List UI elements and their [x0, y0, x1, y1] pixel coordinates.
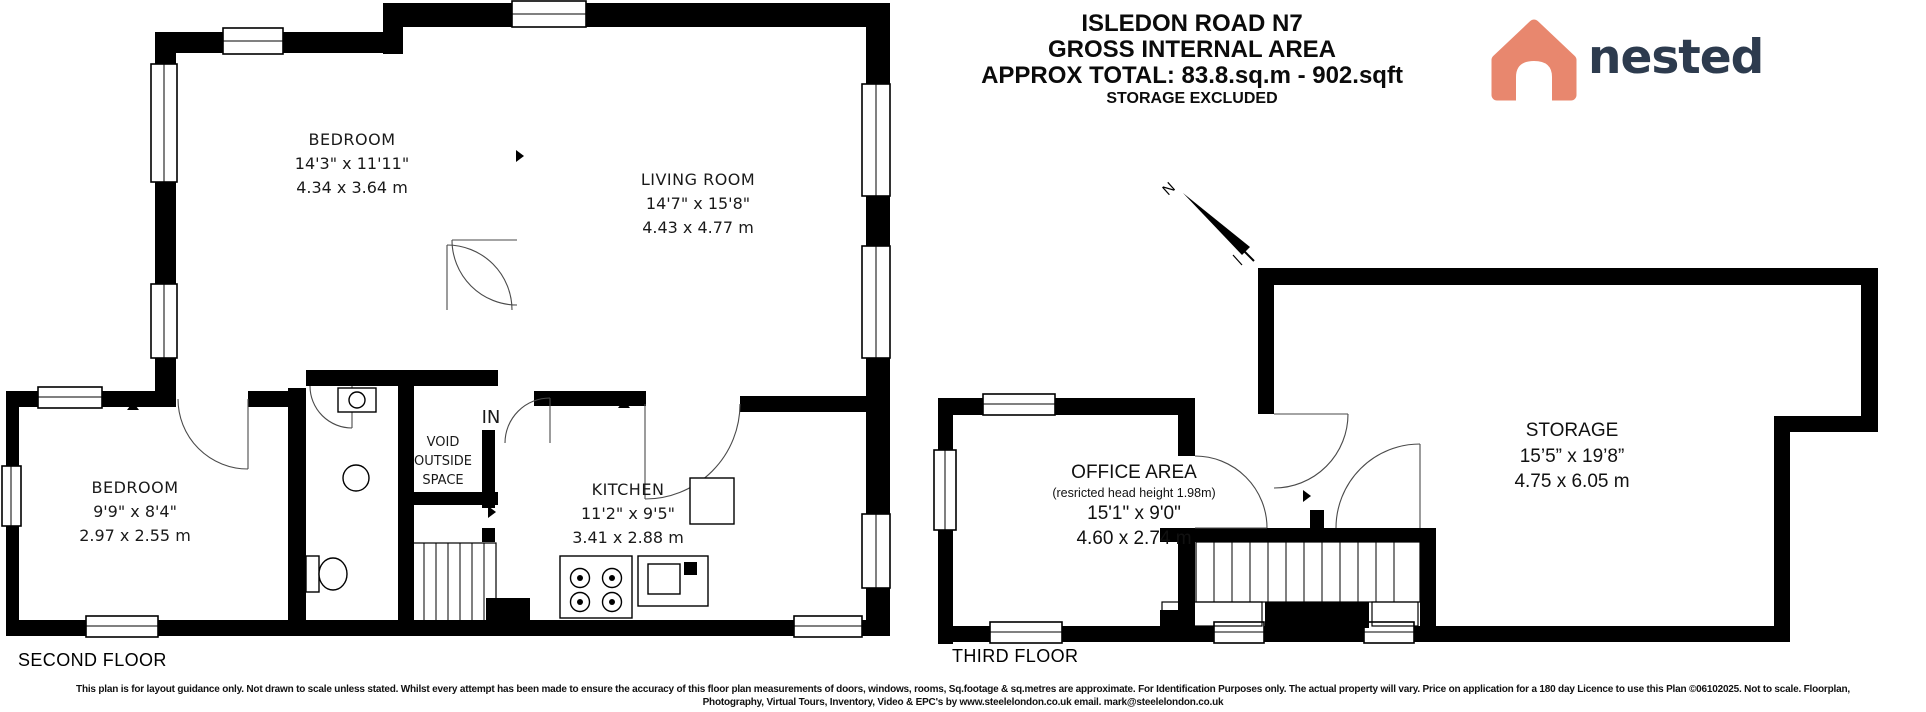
nested-logo-house-icon: [1497, 25, 1571, 101]
room-dims-imperial: 9'9" x 8'4": [79, 500, 191, 524]
storage-label: STORAGE 15’5” x 19’8” 4.75 x 6.05 m: [1514, 418, 1629, 495]
room-name: BEDROOM: [295, 128, 409, 152]
entry-arrows: [1303, 490, 1311, 502]
room-dims-metric: 4.43 x 4.77 m: [641, 216, 755, 240]
door-swing: [447, 245, 512, 310]
kitchen-sink-icon: [638, 556, 708, 606]
third-floor-plan: [934, 268, 1878, 644]
window: [862, 246, 890, 358]
disclaimer: This plan is for layout guidance only. N…: [0, 683, 1926, 709]
room-name: OFFICE AREA: [1052, 460, 1215, 486]
window: [512, 1, 586, 27]
approx-total-area: APPROX TOTAL: 83.8.sq.m - 902.sqft: [981, 63, 1403, 89]
kitchen-label: KITCHEN 11'2" x 9'5" 3.41 x 2.88 m: [572, 478, 684, 550]
void-outside-space-label: VOID OUTSIDE SPACE: [414, 434, 472, 491]
room-note: (resricted head height 1.98m): [1052, 486, 1215, 501]
compass-icon: N: [1159, 179, 1254, 265]
room-dims-imperial: 14'7" x 15'8": [641, 192, 755, 216]
toilet-icon: [306, 556, 347, 592]
sink-icon: [338, 388, 376, 412]
room-dims-metric: 4.60 x 2.74 m: [1052, 526, 1215, 552]
window: [1214, 622, 1264, 643]
room-dims-metric: 3.41 x 2.88 m: [572, 526, 684, 550]
gross-internal-area-label: GROSS INTERNAL AREA: [981, 37, 1403, 63]
washbasin-icon: [343, 465, 369, 491]
door-swing: [178, 399, 248, 469]
room-dims-imperial: 15’5” x 19’8”: [1514, 444, 1629, 470]
bedroom-1-label: BEDROOM 14'3" x 11'11" 4.34 x 3.64 m: [295, 128, 409, 200]
stove-icon: [560, 556, 632, 618]
second-floor-caption: SECOND FLOOR: [18, 650, 167, 671]
void-line: OUTSIDE: [414, 453, 472, 472]
floor-plan-svg: N: [0, 0, 1926, 712]
window: [862, 84, 890, 196]
room-dims-imperial: 15'1" x 9'0": [1052, 501, 1215, 527]
room-dims-metric: 4.34 x 3.64 m: [295, 176, 409, 200]
window: [151, 284, 177, 358]
entry-arrows: [127, 150, 877, 518]
compass-north-label: N: [1159, 179, 1178, 199]
room-dims-metric: 2.97 x 2.55 m: [79, 524, 191, 548]
window: [86, 616, 158, 637]
window: [151, 64, 177, 182]
disclaimer-line-2: Photography, Virtual Tours, Inventory, V…: [0, 696, 1926, 709]
staircase: [1162, 542, 1420, 628]
bedroom-2-label: BEDROOM 9'9" x 8'4" 2.97 x 2.55 m: [79, 476, 191, 548]
void-line: VOID: [414, 434, 472, 453]
window: [934, 450, 956, 530]
entrance-in-label: IN: [482, 404, 501, 431]
window: [223, 28, 283, 54]
window: [38, 387, 102, 408]
title-block: ISLEDON ROAD N7 GROSS INTERNAL AREA APPR…: [981, 11, 1403, 108]
property-address: ISLEDON ROAD N7: [981, 11, 1403, 37]
window: [2, 466, 21, 526]
door-swing: [1336, 444, 1420, 528]
room-dims-metric: 4.75 x 6.05 m: [1514, 469, 1629, 495]
room-name: BEDROOM: [79, 476, 191, 500]
office-area-label: OFFICE AREA (resricted head height 1.98m…: [1052, 460, 1215, 552]
room-name: LIVING ROOM: [641, 168, 755, 192]
floorplan-page: N ISLEDON ROAD N7 GROSS INTERNAL AREA AP…: [0, 0, 1926, 712]
window: [983, 394, 1055, 415]
door-swing: [452, 240, 517, 305]
room-dims-imperial: 14'3" x 11'11": [295, 152, 409, 176]
staircase: [412, 543, 496, 621]
room-name: STORAGE: [1514, 418, 1629, 444]
window: [990, 622, 1062, 643]
window: [862, 514, 890, 588]
storage-excluded-note: STORAGE EXCLUDED: [981, 89, 1403, 108]
void-line: SPACE: [414, 472, 472, 491]
bathroom-fixtures: [306, 388, 376, 592]
door-swing: [1274, 414, 1348, 488]
living-room-label: LIVING ROOM 14'7" x 15'8" 4.43 x 4.77 m: [641, 168, 755, 240]
room-name: KITCHEN: [572, 478, 684, 502]
window: [794, 616, 862, 637]
third-floor-walls: [938, 268, 1878, 644]
disclaimer-line-1: This plan is for layout guidance only. N…: [0, 683, 1926, 696]
room-dims-imperial: 11'2" x 9'5": [572, 502, 684, 526]
third-floor-doors: [1195, 414, 1420, 528]
third-floor-caption: THIRD FLOOR: [952, 646, 1078, 667]
appliance-icon: [690, 478, 734, 524]
nested-logo-text: nested: [1588, 30, 1763, 85]
